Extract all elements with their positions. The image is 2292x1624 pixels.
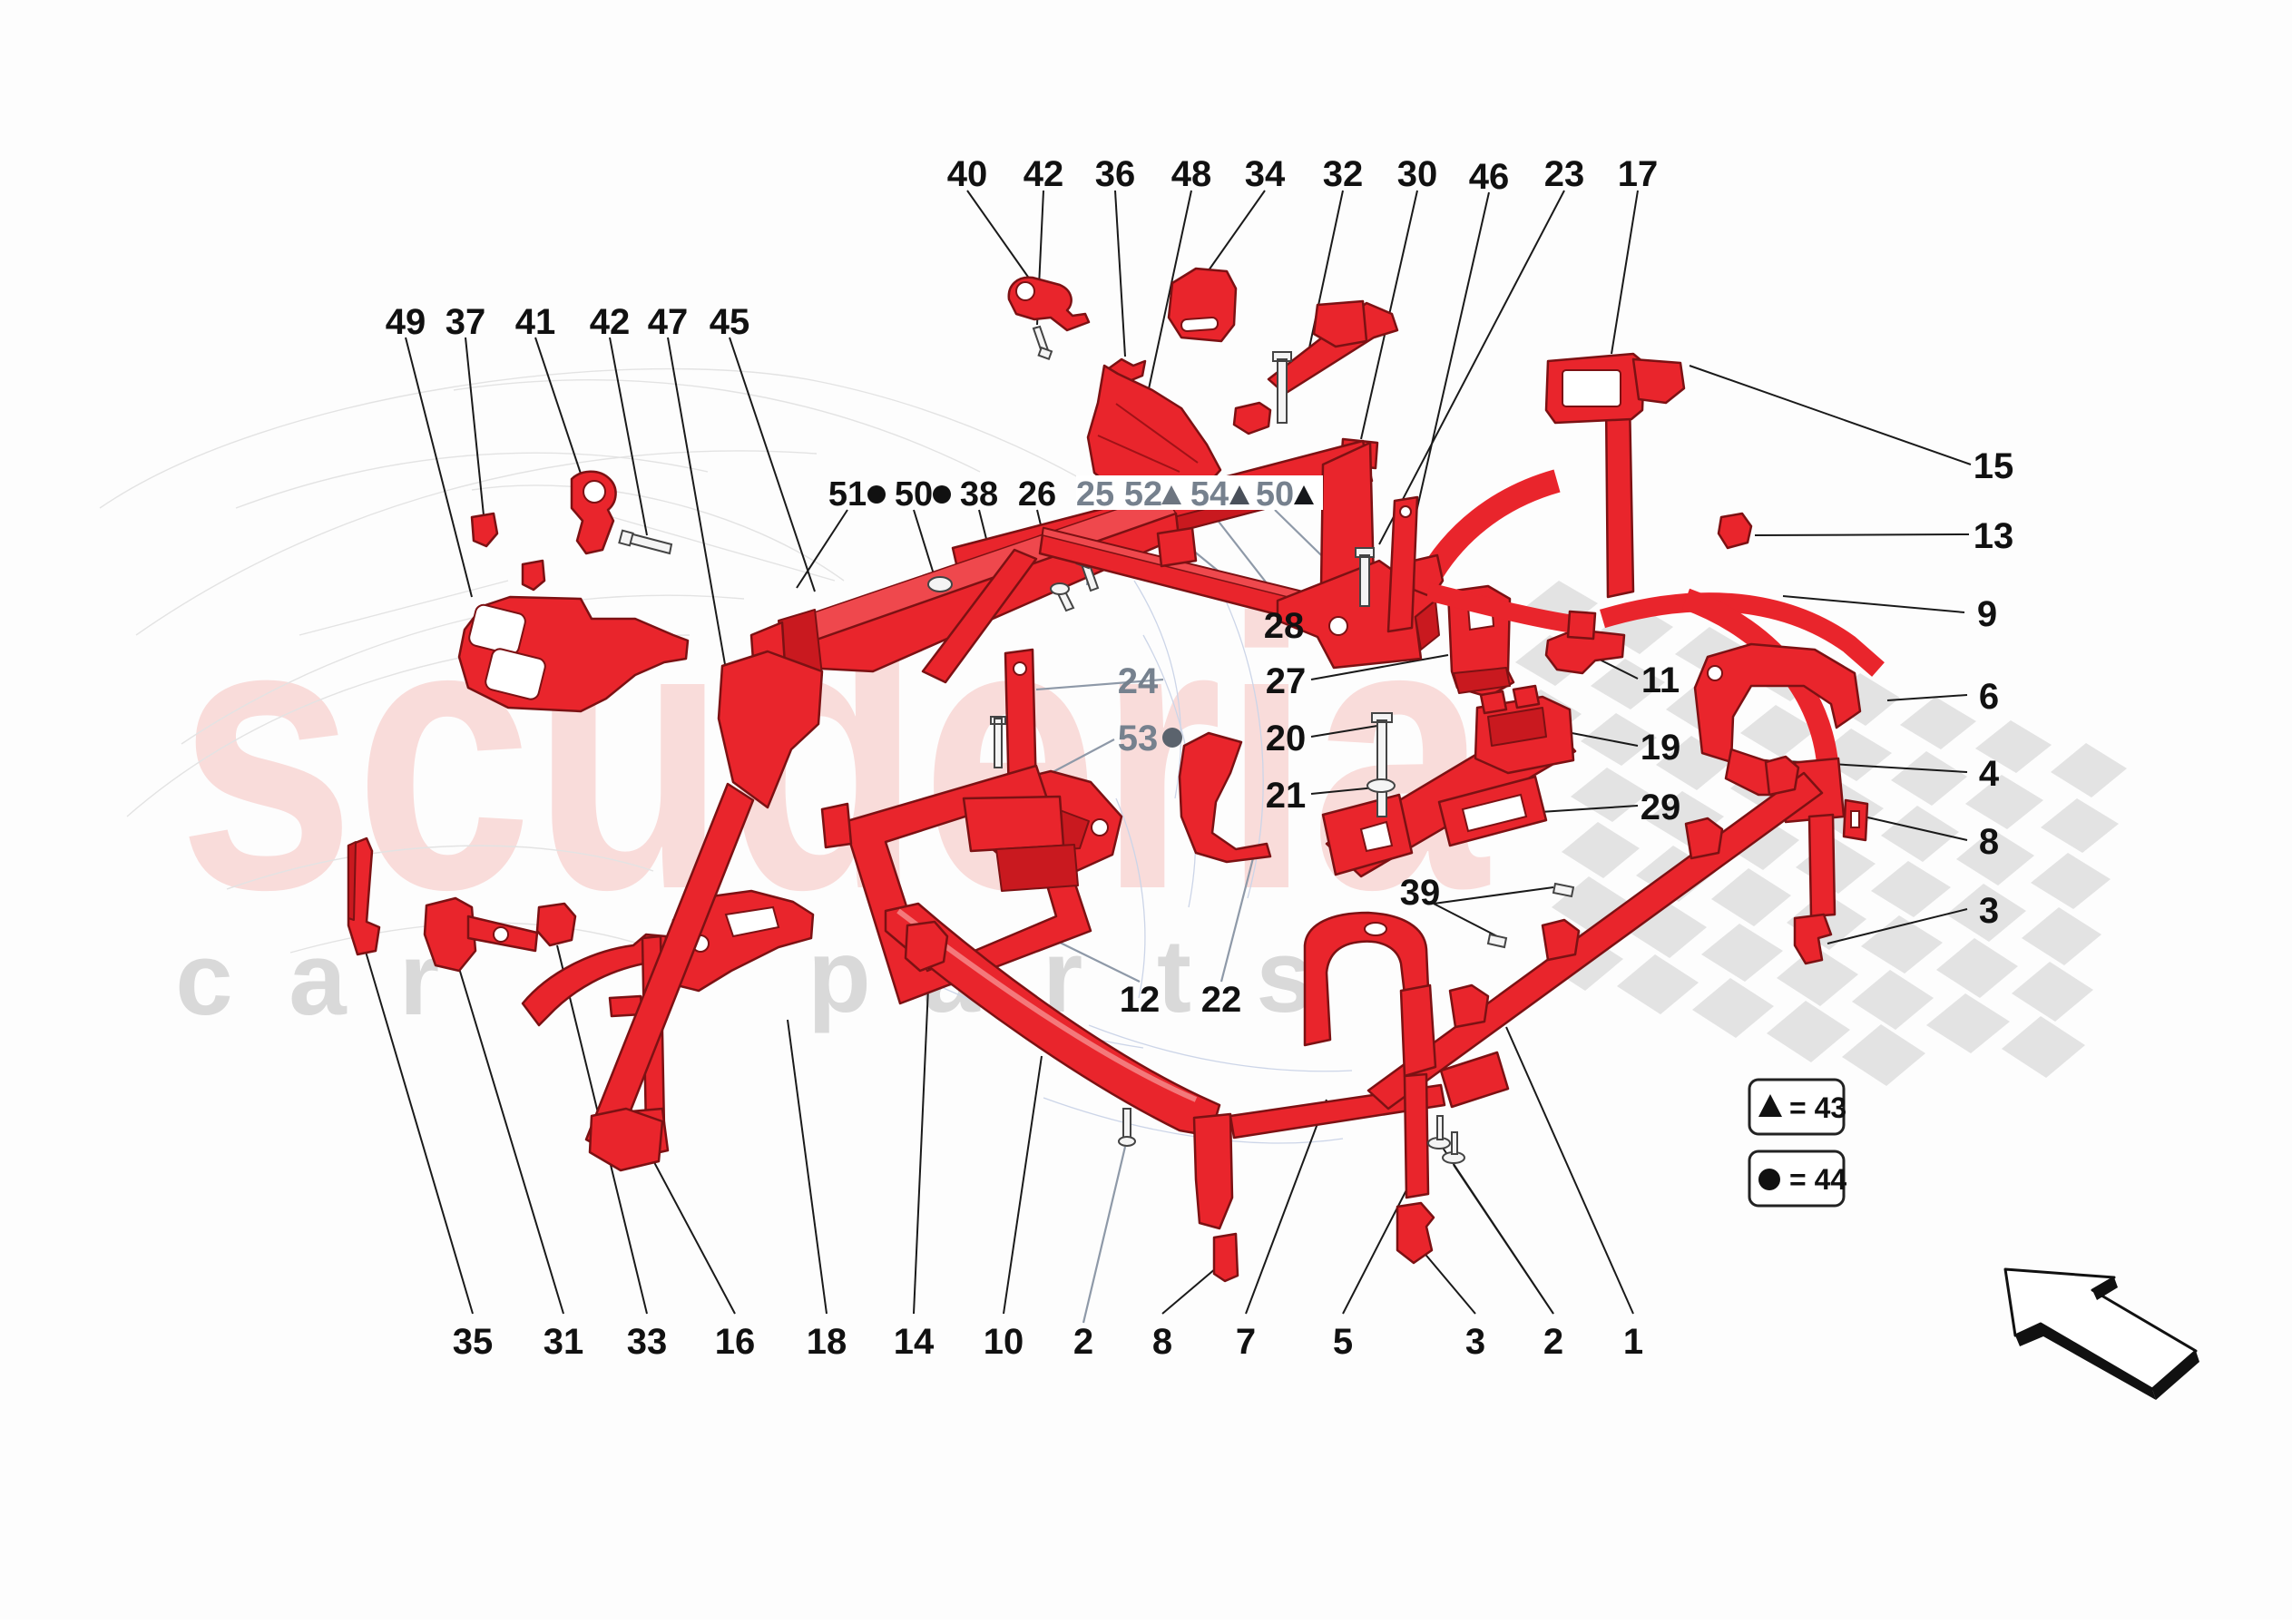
svg-text:9: 9 [1977, 594, 1997, 634]
svg-text:p: p [808, 919, 871, 1034]
svg-text:10: 10 [984, 1322, 1024, 1362]
svg-text:15: 15 [1974, 446, 2014, 486]
svg-text:3: 3 [1465, 1322, 1485, 1362]
svg-text:3: 3 [1979, 891, 1999, 931]
svg-text:11: 11 [1641, 660, 1680, 700]
svg-text:22: 22 [1201, 980, 1242, 1020]
svg-text:23: 23 [1544, 154, 1585, 194]
svg-text:50: 50 [1256, 475, 1294, 514]
svg-text:2: 2 [1543, 1322, 1563, 1362]
svg-text:39: 39 [1400, 873, 1441, 913]
svg-text:42: 42 [1024, 154, 1064, 194]
svg-text:37: 37 [446, 302, 486, 342]
svg-text:20: 20 [1266, 719, 1307, 758]
svg-text:52: 52 [1124, 475, 1162, 514]
svg-text:13: 13 [1974, 516, 2014, 556]
svg-text:29: 29 [1641, 788, 1681, 827]
svg-text:50: 50 [895, 475, 933, 514]
svg-text:47: 47 [648, 302, 689, 342]
svg-text:t: t [1157, 919, 1191, 1034]
svg-text:49: 49 [386, 302, 426, 342]
svg-text:16: 16 [715, 1322, 756, 1362]
svg-text:33: 33 [627, 1322, 668, 1362]
svg-text:4: 4 [1979, 754, 2000, 794]
svg-text:14: 14 [894, 1322, 935, 1362]
svg-text:18: 18 [807, 1322, 847, 1362]
svg-text:42: 42 [590, 302, 631, 342]
svg-text:38: 38 [960, 475, 998, 514]
svg-text:7: 7 [1236, 1322, 1256, 1362]
svg-text:8: 8 [1979, 822, 1999, 862]
svg-text:32: 32 [1323, 154, 1364, 194]
svg-text:2: 2 [1073, 1322, 1093, 1362]
svg-text:= 44: = 44 [1789, 1163, 1846, 1196]
svg-text:21: 21 [1266, 776, 1307, 816]
svg-text:54: 54 [1190, 475, 1229, 514]
svg-text:1: 1 [1623, 1322, 1643, 1362]
svg-text:45: 45 [710, 302, 750, 342]
svg-text:34: 34 [1245, 154, 1286, 194]
svg-text:5: 5 [1333, 1322, 1353, 1362]
svg-text:25: 25 [1076, 475, 1114, 514]
svg-text:26: 26 [1018, 475, 1056, 514]
svg-text:17: 17 [1618, 154, 1659, 194]
svg-text:28: 28 [1264, 606, 1305, 646]
svg-text:6: 6 [1979, 677, 1999, 717]
svg-text:35: 35 [453, 1322, 494, 1362]
svg-text:53: 53 [1118, 719, 1159, 758]
svg-text:24: 24 [1118, 661, 1159, 701]
svg-text:41: 41 [515, 302, 556, 342]
svg-text:8: 8 [1152, 1322, 1172, 1362]
svg-text:46: 46 [1469, 157, 1510, 197]
svg-text:19: 19 [1641, 728, 1681, 768]
svg-text:12: 12 [1120, 980, 1161, 1020]
svg-text:31: 31 [544, 1322, 584, 1362]
svg-text:36: 36 [1095, 154, 1136, 194]
svg-text:51: 51 [828, 475, 867, 514]
svg-text:a: a [289, 922, 348, 1037]
svg-text:40: 40 [947, 154, 988, 194]
svg-text:c: c [175, 922, 232, 1037]
svg-text:27: 27 [1266, 661, 1307, 701]
svg-text:48: 48 [1171, 154, 1212, 194]
svg-text:= 43: = 43 [1789, 1091, 1846, 1124]
svg-text:30: 30 [1397, 154, 1438, 194]
